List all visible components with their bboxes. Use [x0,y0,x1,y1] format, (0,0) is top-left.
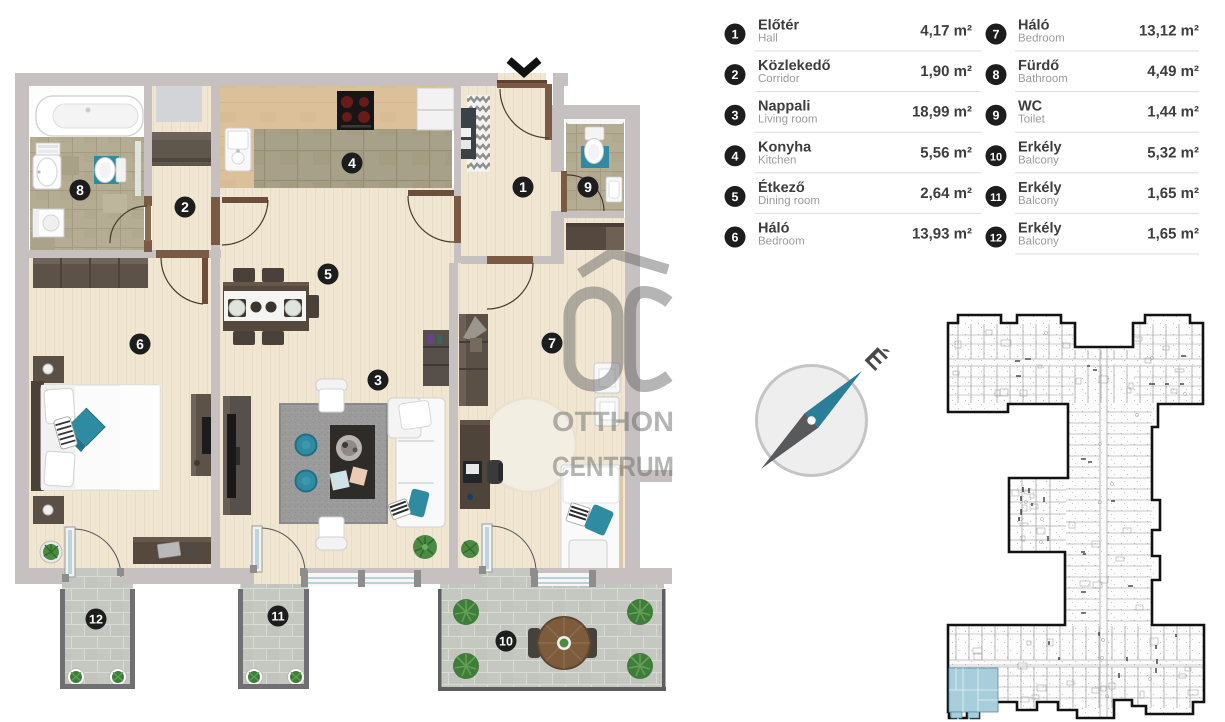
svg-text:9: 9 [993,109,1000,123]
svg-text:Balcony: Balcony [1018,154,1059,166]
svg-text:1: 1 [732,28,739,42]
svg-text:7: 7 [993,28,1000,42]
svg-text:3: 3 [732,109,739,123]
svg-text:Erkély: Erkély [1018,221,1062,237]
svg-text:7: 7 [548,335,556,351]
svg-text:Hall: Hall [758,33,778,45]
svg-text:Konyha: Konyha [758,139,812,155]
svg-text:5,32 m²: 5,32 m² [1147,144,1199,161]
svg-text:Bedroom: Bedroom [758,236,805,248]
svg-text:Háló: Háló [1018,18,1050,34]
svg-text:1,90 m²: 1,90 m² [920,63,972,80]
svg-text:4,17 m²: 4,17 m² [920,23,972,40]
svg-text:13,12 m²: 13,12 m² [1139,23,1199,40]
svg-text:Corridor: Corridor [758,73,800,85]
svg-text:Living room: Living room [758,114,817,126]
svg-text:4: 4 [348,155,356,171]
svg-text:Kitchen: Kitchen [758,154,796,166]
svg-text:CENTRUM: CENTRUM [552,451,674,482]
svg-text:18,99 m²: 18,99 m² [912,104,972,121]
svg-text:8: 8 [76,182,84,198]
svg-text:5: 5 [732,190,739,204]
svg-text:5: 5 [324,266,332,282]
svg-text:9: 9 [584,179,592,195]
svg-text:4,49 m²: 4,49 m² [1147,63,1199,80]
svg-text:OTTHON: OTTHON [552,406,674,437]
svg-text:12: 12 [990,233,1002,245]
svg-text:3: 3 [374,372,382,388]
svg-text:Erkély: Erkély [1018,180,1062,196]
svg-text:11: 11 [990,192,1002,204]
svg-text:5,56 m²: 5,56 m² [920,144,972,161]
svg-text:Közlekedő: Közlekedő [758,58,831,74]
svg-text:10: 10 [499,635,513,649]
svg-text:Toilet: Toilet [1018,114,1046,126]
svg-text:11: 11 [271,610,284,624]
svg-text:13,93 m²: 13,93 m² [912,226,972,243]
svg-text:6: 6 [136,336,144,352]
svg-text:10: 10 [990,151,1002,163]
svg-text:1,44 m²: 1,44 m² [1147,104,1199,121]
svg-text:6: 6 [732,231,739,245]
svg-text:Dining room: Dining room [758,195,820,207]
svg-text:2,64 m²: 2,64 m² [920,185,972,202]
svg-text:Fürdő: Fürdő [1018,58,1059,74]
svg-text:12: 12 [89,613,103,627]
svg-text:2: 2 [181,199,189,215]
svg-text:4: 4 [732,149,739,163]
svg-text:Előtér: Előtér [758,18,799,34]
svg-text:WC: WC [1018,99,1043,115]
svg-text:Balcony: Balcony [1018,236,1059,248]
svg-text:Háló: Háló [758,221,790,237]
svg-text:8: 8 [993,68,1000,82]
svg-text:Bathroom: Bathroom [1018,73,1068,85]
svg-text:1,65 m²: 1,65 m² [1147,185,1199,202]
svg-text:Balcony: Balcony [1018,195,1059,207]
svg-text:2: 2 [732,68,739,82]
svg-text:Bedroom: Bedroom [1018,33,1065,45]
svg-text:1: 1 [519,179,527,195]
svg-text:Nappali: Nappali [758,99,810,115]
svg-text:Étkező: Étkező [758,179,805,196]
svg-text:1,65 m²: 1,65 m² [1147,226,1199,243]
svg-text:Erkély: Erkély [1018,139,1062,155]
